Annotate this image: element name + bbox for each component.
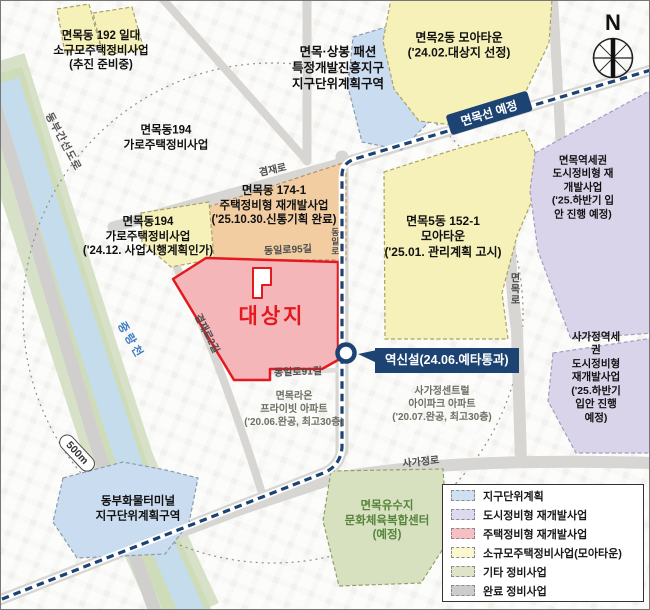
legend-row: 지구단위계획 [451,488,635,504]
label-target-site: 대상지 [239,300,306,330]
legend-swatch-district-plan [451,490,475,501]
compass-north-label: N [605,10,621,36]
label-myeonmok194-sub: 면목동194 가로주택정비사업 ('24.12. 사업시행계획인가) [83,215,213,259]
legend-row: 주택정비형 재개발사업 [451,526,635,542]
apartment-building [399,425,417,434]
new-station-marker [338,345,355,362]
legend-swatch-small-housing [451,547,475,558]
legend-label: 기타 정비사업 [483,564,547,580]
label-yusuji-center: 면목유수지 문화체육복합센터 (예정) [345,499,430,543]
legend-row: 소규모주택정비사업(모아타운) [451,545,635,561]
label-myeonmok194: 면목동194 가로주택정비사업 [124,123,209,152]
legend-row: 도시정비형 재개발사업 [451,507,635,523]
label-myeonmok-station-area: 면목역세권 도시정비형 재개발사업 ('25.하반기 입안 진행 예정) [550,154,616,221]
legend: 지구단위계획 도시정비형 재개발사업 주택정비형 재개발사업 소규모주택정비사업… [442,484,644,602]
road-label-dongil: 동일로 [331,228,340,257]
label-myeonmok174: 면목동 174-1 주택정비형 재개발사업 ('25.10.30.신통기획 완료… [211,184,336,228]
legend-label: 도시정비형 재개발사업 [483,507,587,523]
label-moatown-2dong: 면목2동 모아타운 ('24.02.대상지 선정) [408,31,511,62]
legend-row: 완료 정비사업 [451,583,635,599]
label-sagajeong-station-area: 사가정역세권 도시정비형 재개발사업 ('25.하반기 입안 진행 예정) [570,331,623,425]
road-label-dongil91: 동일로91길 [274,367,322,379]
legend-label: 소규모주택정비사업(모아타운) [483,545,622,561]
legend-label: 완료 정비사업 [483,583,547,599]
road-label-myeonmokro: 면목로 [508,273,518,306]
label-fashion-district: 면목·상봉 패션 특정개발진흥지구 지구단위계획구역 [292,44,384,92]
apartment-building [467,429,485,438]
legend-swatch-other [451,566,475,577]
legend-label: 지구단위계획 [483,488,544,504]
legend-swatch-completed [451,585,475,596]
compass-icon [594,39,633,78]
label-raon-apartment: 면목라온 프라이빗 아파트 ('20.06.완공, 최고30층) [244,391,344,429]
legend-label: 주택정비형 재개발사업 [483,526,587,542]
label-moatown-152: 면목5동 152-1 모아타운 ('25.01. 관리계획 고시) [384,214,501,260]
legend-swatch-housing-redev [451,528,475,539]
legend-swatch-urban-redev [451,509,475,520]
label-terminal: 동부화물터미널 지구단위계획구역 [96,494,181,523]
urban-plan-map: 면목동 192 일대 소규모주택정비사업 (추진 준비중) 면목·상봉 패션 특… [0,0,650,610]
topright-vertical-road [553,1,561,149]
station-callout: 역신설(24.06.예타통과) [375,348,519,373]
label-zone-192: 면목동 192 일대 소규모주택정비사업 (추진 준비중) [53,29,148,73]
label-ipark-apartment: 사가정센트럴 아이파크 아파트 ('20.07.완공, 최고30층) [392,386,492,424]
legend-row: 기타 정비사업 [451,564,635,580]
